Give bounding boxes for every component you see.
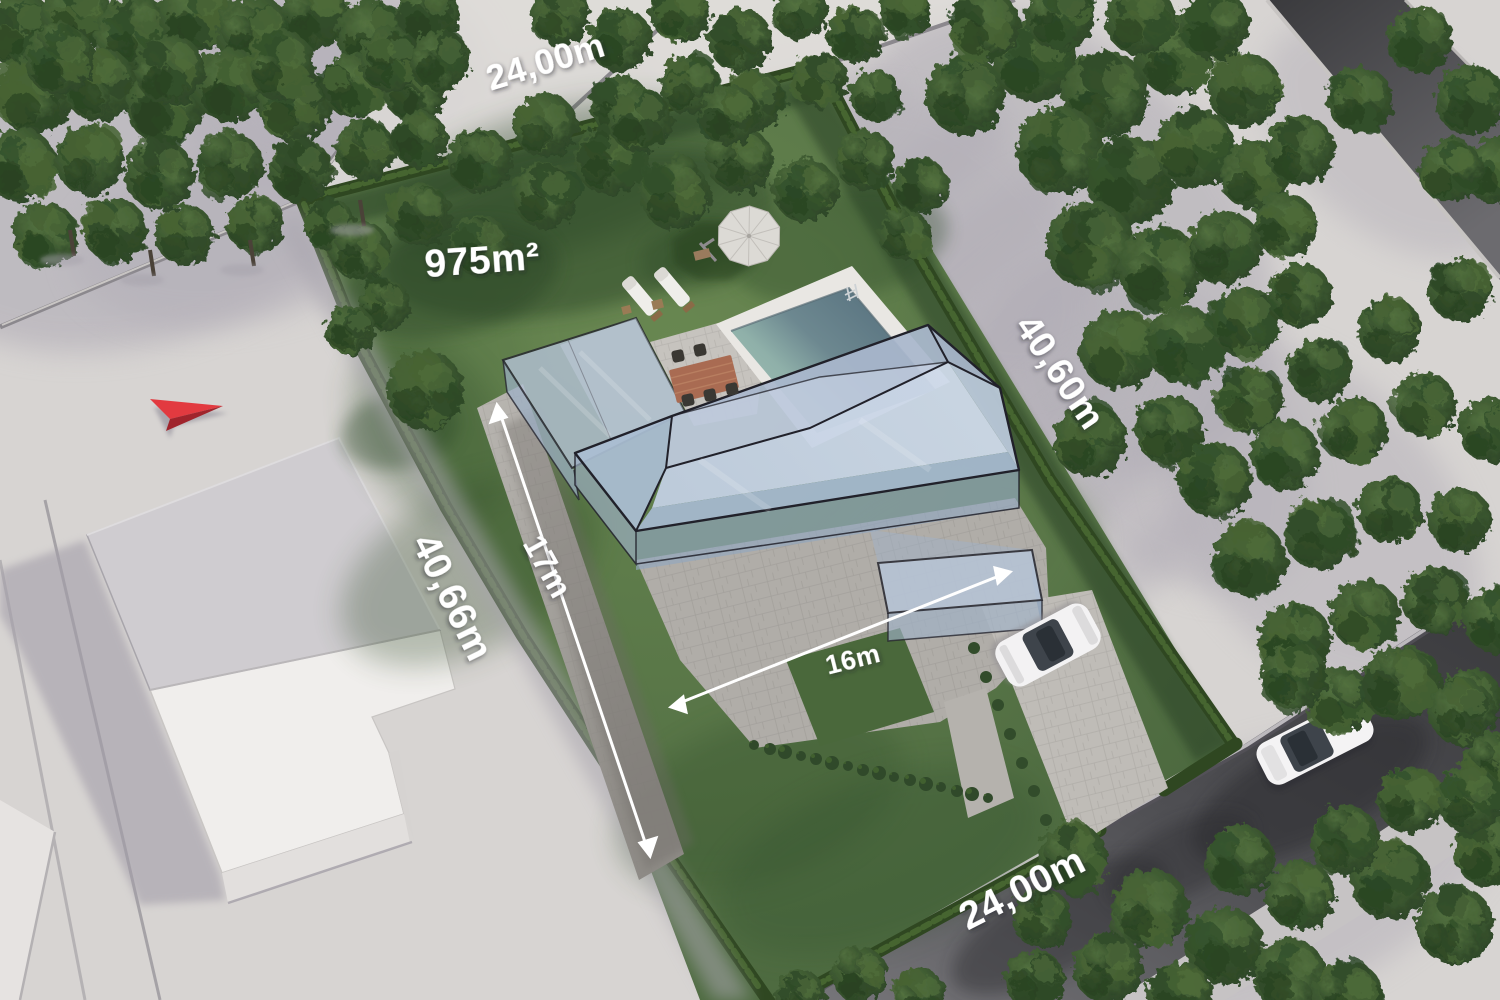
svg-text:975m²: 975m²: [423, 235, 541, 286]
